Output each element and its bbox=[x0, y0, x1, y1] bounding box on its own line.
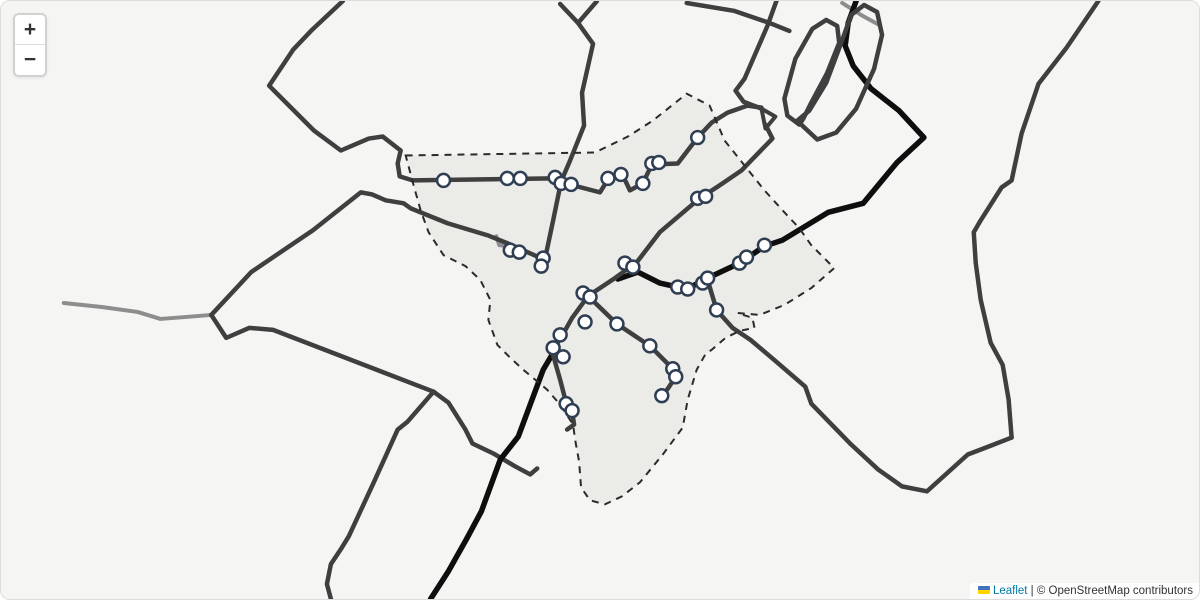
stop-marker[interactable] bbox=[758, 239, 771, 252]
stop-marker[interactable] bbox=[513, 246, 526, 259]
stop-marker[interactable] bbox=[652, 156, 665, 169]
stop-marker[interactable] bbox=[601, 172, 614, 185]
leaflet-map-container: + − Leaflet | © OpenStreetMap contributo… bbox=[0, 0, 1200, 600]
map-canvas[interactable] bbox=[1, 1, 1199, 599]
zoom-control: + − bbox=[13, 13, 47, 77]
stop-marker[interactable] bbox=[614, 168, 627, 181]
attribution-text: © OpenStreetMap contributors bbox=[1037, 585, 1193, 597]
stop-marker[interactable] bbox=[636, 177, 649, 190]
zoom-out-button[interactable]: − bbox=[15, 45, 45, 75]
leaflet-link[interactable]: Leaflet bbox=[993, 585, 1028, 597]
attribution-bar: Leaflet | © OpenStreetMap contributors bbox=[970, 583, 1199, 599]
stop-marker[interactable] bbox=[514, 172, 527, 185]
stop-marker[interactable] bbox=[669, 370, 682, 383]
stop-marker[interactable] bbox=[610, 317, 623, 330]
stop-marker[interactable] bbox=[699, 190, 712, 203]
stop-marker[interactable] bbox=[566, 404, 579, 417]
stop-marker[interactable] bbox=[740, 251, 753, 264]
stop-marker[interactable] bbox=[655, 389, 668, 402]
stop-marker[interactable] bbox=[554, 328, 567, 341]
stop-marker[interactable] bbox=[626, 261, 639, 274]
stop-marker[interactable] bbox=[535, 260, 548, 273]
stop-marker[interactable] bbox=[701, 272, 714, 285]
ukraine-flag-icon bbox=[978, 586, 990, 594]
map-layers bbox=[2, 1, 1198, 599]
stop-marker[interactable] bbox=[565, 178, 578, 191]
stop-marker[interactable] bbox=[501, 172, 514, 185]
stop-marker[interactable] bbox=[557, 350, 570, 363]
stop-marker[interactable] bbox=[691, 131, 704, 144]
zoom-in-button[interactable]: + bbox=[15, 15, 45, 45]
attribution-separator: | bbox=[1027, 585, 1036, 597]
stop-marker[interactable] bbox=[643, 339, 656, 352]
stop-marker[interactable] bbox=[681, 283, 694, 296]
stop-marker[interactable] bbox=[579, 315, 592, 328]
stop-marker[interactable] bbox=[584, 291, 597, 304]
stop-marker[interactable] bbox=[710, 303, 723, 316]
stop-marker[interactable] bbox=[437, 174, 450, 187]
